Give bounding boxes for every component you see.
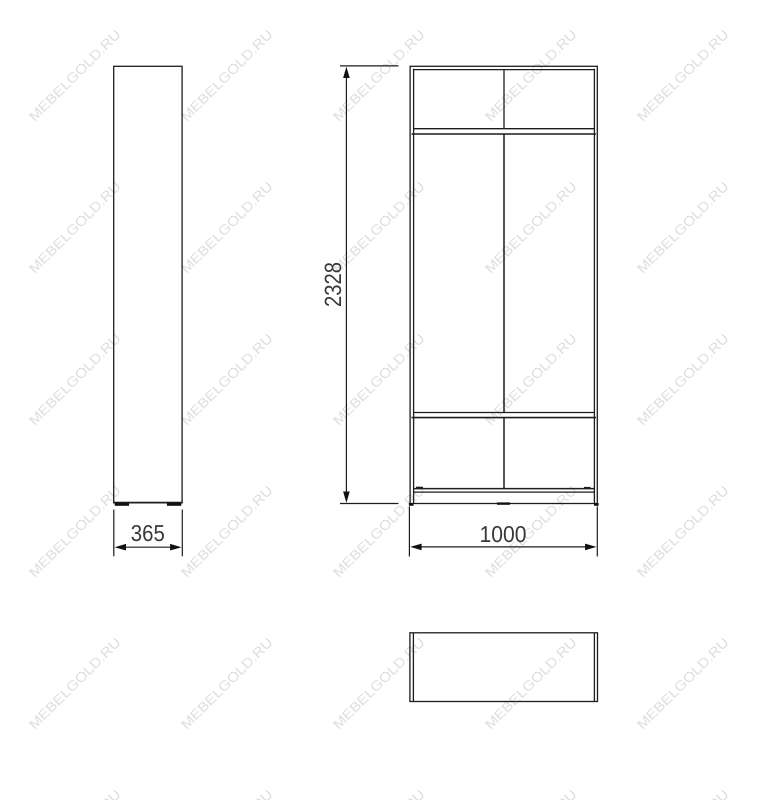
- svg-text:365: 365: [131, 520, 165, 546]
- svg-text:1000: 1000: [480, 521, 527, 547]
- svg-text:2328: 2328: [320, 262, 346, 307]
